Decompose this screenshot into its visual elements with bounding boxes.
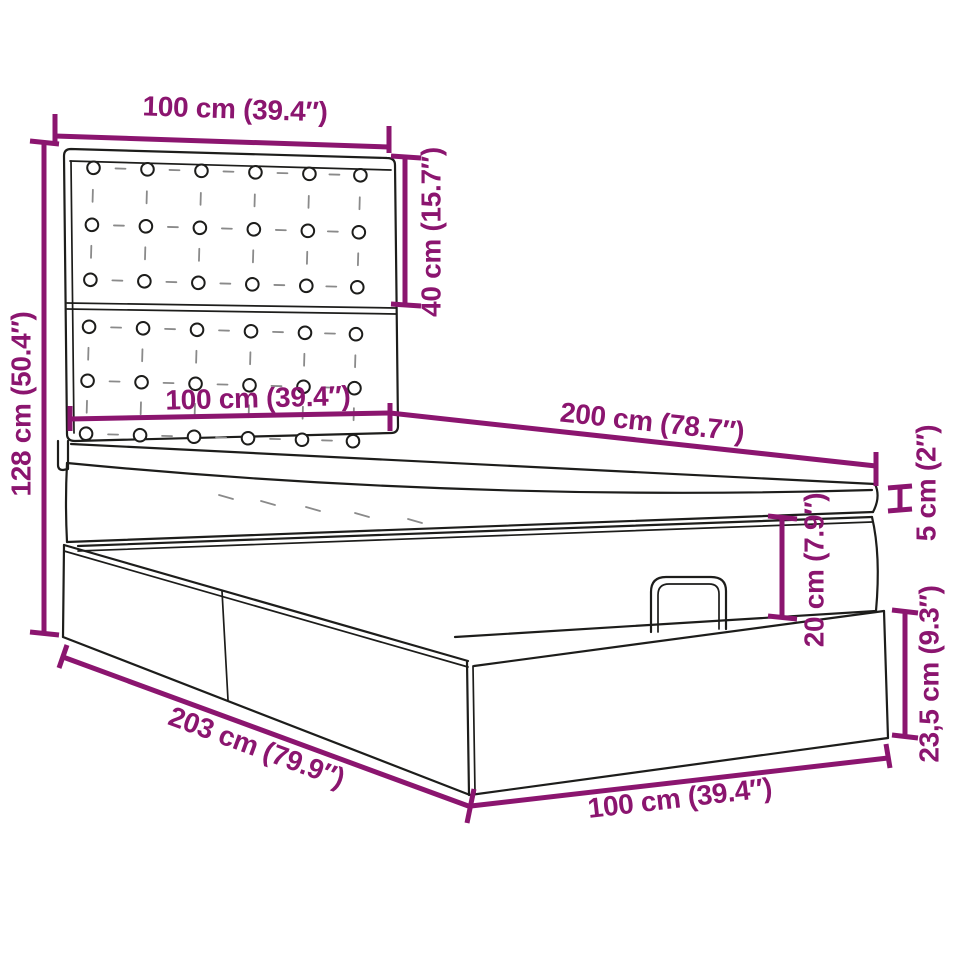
base-foot-right-edge	[884, 611, 888, 738]
tufting-button	[354, 169, 367, 182]
tufting-button	[247, 223, 260, 236]
tufting-button	[87, 161, 100, 174]
tufting-button	[80, 427, 93, 440]
mattress-foot-cap	[873, 484, 878, 512]
dim-base-width-bottom: 100 cm (39.4″)	[471, 744, 890, 824]
tufting-button	[84, 273, 97, 286]
headboard-seam-upper	[67, 303, 396, 308]
dimension-diagram: 100 cm (39.4″) 40 cm (15.7″) 128 cm (50.…	[0, 0, 955, 955]
dim-label-ottoman-section-height: 20 cm (7.9″)	[798, 493, 829, 648]
dim-label-headboard-upper-height: 40 cm (15.7″)	[415, 147, 446, 317]
tufting-button	[193, 221, 206, 234]
ottoman-foot-cap	[872, 517, 878, 611]
tufting-button	[351, 281, 364, 294]
dim-headboard-upper-height: 40 cm (15.7″)	[391, 147, 446, 317]
tufting-button	[192, 276, 205, 289]
tufting-button	[249, 166, 262, 179]
dim-mattress-thickness: 5 cm (2″)	[888, 425, 941, 542]
dim-bed-width-at-headboard: 100 cm (39.4″)	[70, 380, 390, 431]
tufting-button	[347, 435, 360, 448]
tufting-button	[195, 164, 208, 177]
base-left-edge	[63, 545, 64, 637]
dim-headboard-total-height: 128 cm (50.4″)	[5, 141, 59, 635]
dim-ottoman-section-height: 20 cm (7.9″)	[768, 493, 829, 648]
tufting-button	[134, 429, 147, 442]
base-front-top-piping	[64, 551, 468, 667]
bed-drawing	[58, 149, 888, 795]
dim-headboard-width-top: 100 cm (39.4″)	[55, 90, 389, 153]
dim-label-base-length: 203 cm (79.9″)	[165, 700, 349, 793]
tufting-button	[81, 374, 94, 387]
tufting-button	[141, 163, 154, 176]
base-front-corner-edge-2	[473, 666, 475, 793]
mattress-left-edge	[66, 463, 67, 542]
tufting-button	[85, 218, 98, 231]
mattress-stitches	[219, 495, 422, 523]
dim-label-headboard-total-height: 128 cm (50.4″)	[5, 311, 36, 496]
ottoman-section	[78, 517, 878, 637]
tufting-button	[301, 224, 314, 237]
base-front-top-edge	[64, 545, 468, 661]
ottoman-top-edge	[78, 517, 872, 546]
dim-base-length: 203 cm (79.9″)	[59, 645, 474, 823]
tufting-button	[300, 279, 313, 292]
dim-label-bed-width-at-headboard: 100 cm (39.4″)	[165, 380, 351, 416]
dim-label-headboard-width-top: 100 cm (39.4″)	[142, 90, 328, 127]
tufting-button	[188, 430, 201, 443]
headboard-seam-lower	[67, 309, 396, 314]
dim-base-height: 23,5 cm (9.3″)	[892, 585, 944, 762]
tufting-button	[191, 323, 204, 336]
tufting-button	[299, 326, 312, 339]
tufting-button	[135, 376, 148, 389]
tufting-button	[349, 328, 362, 341]
headboard	[58, 149, 398, 470]
base-front-bottom-edge	[63, 637, 470, 795]
bed-diagram-svg: 100 cm (39.4″) 40 cm (15.7″) 128 cm (50.…	[0, 0, 955, 955]
tufting-button	[303, 167, 316, 180]
storage-base	[63, 545, 888, 795]
mattress	[66, 444, 878, 542]
tufting-button	[139, 220, 152, 233]
tufting-button	[246, 278, 259, 291]
tufting-button	[242, 432, 255, 445]
base-panel-divider	[222, 591, 228, 700]
tufting-button	[245, 325, 258, 338]
headboard-panel-edge-left	[71, 161, 74, 433]
dim-label-mattress-thickness: 5 cm (2″)	[910, 425, 941, 542]
tufting-button	[296, 433, 309, 446]
tufting-button	[352, 226, 365, 239]
tufting-button	[138, 275, 151, 288]
mattress-top-back-edge	[71, 444, 875, 484]
dim-label-base-height: 23,5 cm (9.3″)	[913, 585, 944, 762]
tufting-button	[137, 322, 150, 335]
base-front-corner-edge	[467, 662, 469, 795]
tufting-button	[83, 320, 96, 333]
